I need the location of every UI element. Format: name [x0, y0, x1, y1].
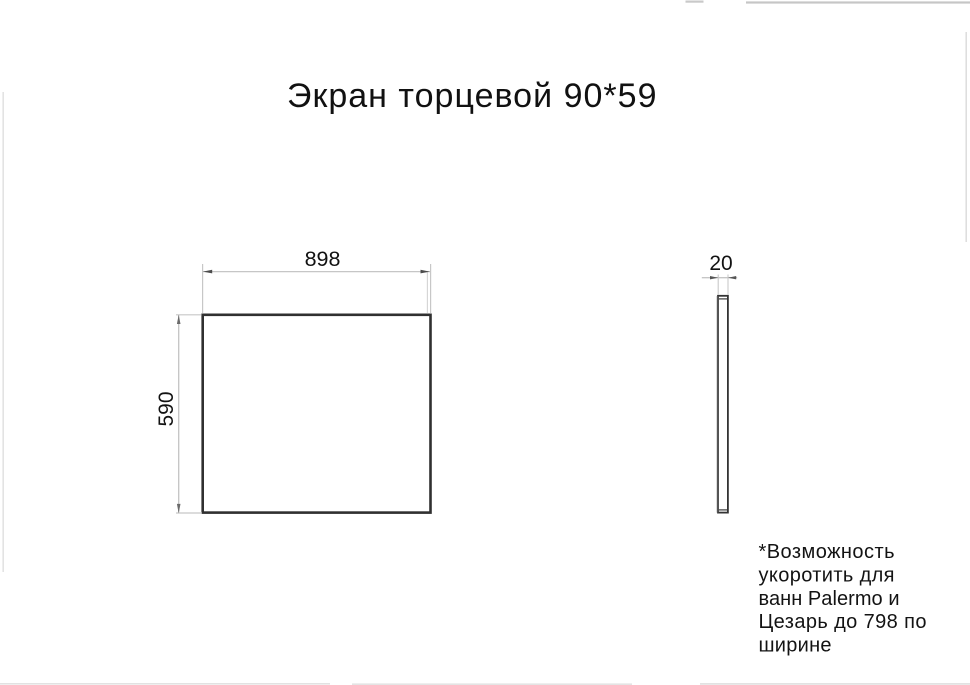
svg-text:*Возможность: *Возможность — [759, 541, 895, 563]
svg-text:ванн Palermo и: ванн Palermo и — [759, 588, 900, 610]
svg-text:укоротить для: укоротить для — [759, 564, 895, 586]
svg-text:Экран торцевой 90*59: Экран торцевой 90*59 — [287, 77, 657, 115]
svg-text:20: 20 — [709, 252, 732, 275]
svg-text:ширине: ширине — [759, 635, 832, 657]
svg-text:590: 590 — [155, 391, 178, 426]
svg-text:898: 898 — [305, 247, 341, 271]
svg-text:Цезарь до 798 по: Цезарь до 798 по — [759, 611, 927, 633]
